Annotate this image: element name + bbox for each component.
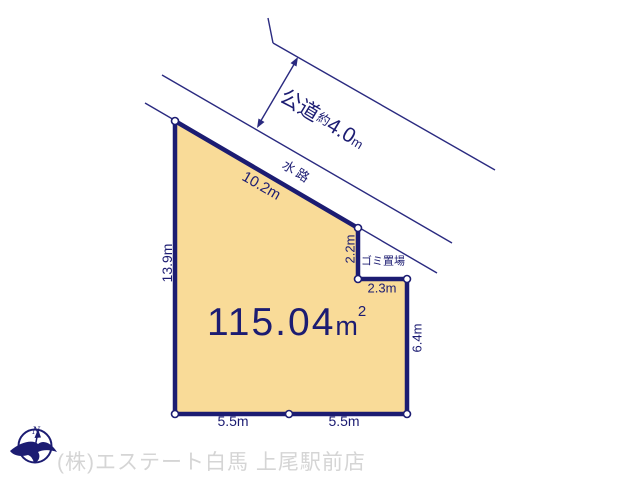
dim-bottom-left: 5.5m (217, 414, 248, 428)
diagram-canvas: N (0, 0, 640, 480)
parcel-area-label: 115.04m2 (207, 303, 366, 342)
compass-north-label: N (31, 423, 41, 437)
road-bend-line (268, 18, 273, 43)
area-value: 115.04 (207, 301, 335, 344)
land-plot-diagram: N 公道約4.0m 水路 10.2m 13.9m 2.2m 2.3m 6.4m … (0, 0, 640, 480)
dim-bottom-right: 5.5m (328, 414, 359, 428)
dim-left-edge: 13.9m (160, 244, 174, 283)
garbage-area-label: ゴミ置場 (361, 257, 405, 268)
company-name: (株)エステート白馬 上尾駅前店 (57, 446, 366, 476)
dim-notch-vertical: 2.2m (344, 235, 357, 264)
dim-right-edge: 6.4m (411, 324, 424, 353)
dim-notch-horizontal: 2.3m (368, 282, 397, 295)
area-unit: m (335, 311, 358, 341)
area-unit-superscript: 2 (358, 303, 366, 320)
compass-icon: N (10, 423, 57, 463)
